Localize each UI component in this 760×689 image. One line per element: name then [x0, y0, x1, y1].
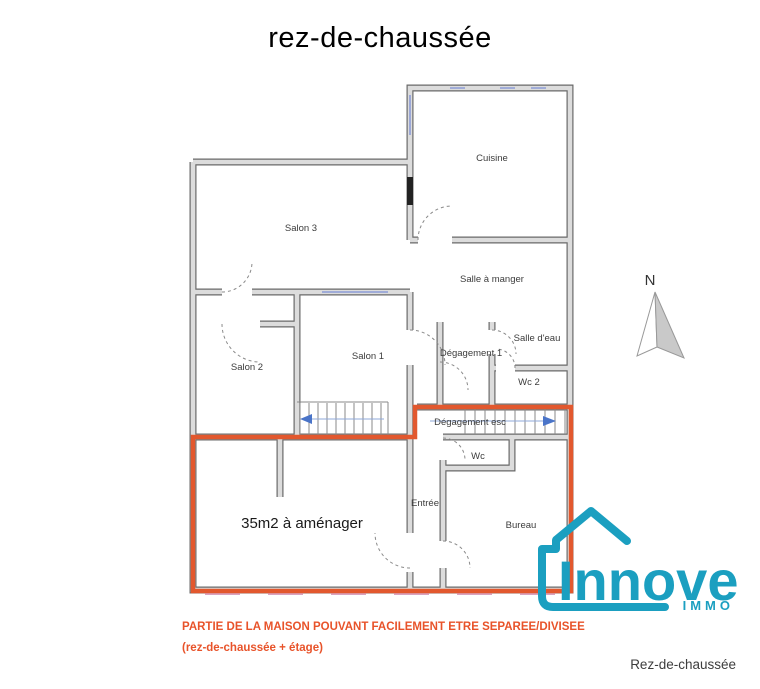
- room-label-degagement-1: Dégagement 1: [440, 348, 502, 359]
- room-label-salle-d-eau: Salle d'eau: [514, 333, 561, 344]
- room-label-entree: Entrée: [411, 498, 439, 509]
- floor-plan: Cuisine Salon 3 Salle à manger Salon 2 S…: [0, 0, 760, 689]
- brand-logo: Innove IMMO: [542, 511, 738, 613]
- stairs-esc-arrow-icon: [543, 416, 556, 426]
- room-label-salon-3: Salon 3: [285, 223, 317, 234]
- north-label: N: [645, 272, 656, 289]
- caption-line1: PARTIE DE LA MAISON POUVANT FACILEMENT E…: [182, 617, 585, 638]
- room-label-salon-2: Salon 2: [231, 362, 263, 373]
- brand-sub: IMMO: [683, 598, 734, 613]
- caption-line2: (rez-de-chaussée + étage): [182, 638, 585, 659]
- windows-blue: [322, 88, 546, 292]
- floor-plan-page: rez-de-chaussée Cuisine Salon 3 Salle à …: [0, 0, 760, 689]
- footer-label: Rez-de-chaussée: [630, 657, 736, 672]
- room-label-bureau: Bureau: [506, 520, 537, 531]
- room-label-salon-1: Salon 1: [352, 351, 384, 362]
- room-label-salle-a-manger: Salle à manger: [460, 274, 524, 285]
- stairs-main-arrow-icon: [300, 414, 312, 424]
- room-label-wc: Wc: [471, 451, 485, 462]
- room-label-amenager: 35m2 à aménager: [241, 515, 363, 532]
- room-label-degagement-esc: Dégagement esc: [434, 417, 506, 428]
- room-label-wc-2: Wc 2: [518, 377, 540, 388]
- caption: PARTIE DE LA MAISON POUVANT FACILEMENT E…: [182, 617, 585, 659]
- north-arrow-icon: N: [637, 272, 684, 358]
- door-arcs: [222, 206, 516, 568]
- chimney-wall-segment: [407, 177, 413, 205]
- room-label-cuisine: Cuisine: [476, 153, 508, 164]
